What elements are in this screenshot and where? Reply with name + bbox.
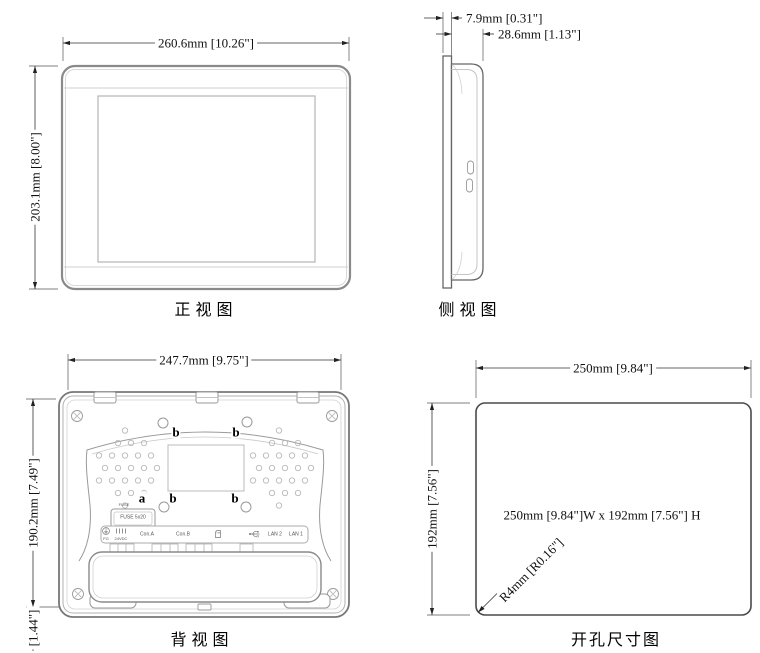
bottom-tab	[198, 604, 211, 610]
cutout-width-dimension: 250mm [9.84"]	[570, 362, 656, 375]
back-view-title: 背视图	[170, 626, 233, 650]
mount-hole-b	[242, 417, 252, 427]
callout-b: b	[171, 426, 180, 439]
mount-hole-b	[158, 418, 168, 428]
cutout-view-title: 开孔尺寸图	[571, 626, 661, 650]
lan2-port-label: LAN 2	[268, 533, 282, 538]
back-view	[26, 354, 349, 651]
side-depth-dimension: 28.6mm [1.13"]	[498, 28, 581, 41]
usb-icon	[249, 531, 262, 538]
power-port-label: 24VDC	[115, 537, 128, 541]
callout-b: b	[231, 426, 240, 439]
back-height-dimension: 190.2mm [7.49"]	[27, 455, 40, 550]
side-slot	[468, 161, 474, 174]
cutout-panel-label: 250mm [9.84"]W x 192mm [7.56"] H	[503, 509, 700, 522]
fuse-box-label: FUSE 5x20	[120, 516, 146, 521]
mount-hole-b	[241, 502, 251, 512]
side-bezel-dimension: 7.9mm [0.31"]	[466, 12, 542, 25]
callout-b: b	[168, 492, 177, 505]
cutout-height-dimension: 192mm [7.56"]	[426, 466, 439, 552]
power-terminal-icon	[115, 528, 127, 535]
con-b-port-label: Con.B	[176, 533, 190, 538]
con-a-port-label: Con.A	[140, 533, 154, 538]
line-art	[0, 0, 760, 653]
front-width-dimension: 260.6mm [10.26"]	[155, 37, 257, 50]
ground-icon	[102, 527, 110, 535]
front-view-title: 正视图	[174, 296, 237, 320]
fuse-small-label: FUSE	[119, 503, 130, 507]
front-view	[29, 37, 350, 289]
side-view	[424, 12, 494, 288]
front-screen	[98, 96, 315, 262]
side-view-title: 侧视图	[438, 296, 501, 320]
back-width-dimension: 247.7mm [9.75"]	[156, 354, 251, 367]
front-height-dimension: 203.1mm [8.00"]	[29, 129, 42, 224]
lan1-port-label: LAN 1	[289, 533, 303, 538]
callout-b: b	[230, 492, 239, 505]
sd-card-icon	[215, 530, 222, 539]
fg-port-label: FG	[103, 537, 109, 541]
side-slot	[467, 179, 473, 192]
cutout-view	[427, 360, 751, 615]
technical-drawing-canvas: 260.6mm [10.26"] 203.1mm [8.00"] 正视图 7.9…	[0, 0, 760, 653]
back-center-plate	[168, 445, 244, 491]
terminal-cover	[89, 552, 321, 602]
side-bezel	[443, 56, 452, 288]
back-bottom-dimension: [1.44"]	[27, 607, 40, 650]
callout-a: a	[138, 492, 147, 505]
